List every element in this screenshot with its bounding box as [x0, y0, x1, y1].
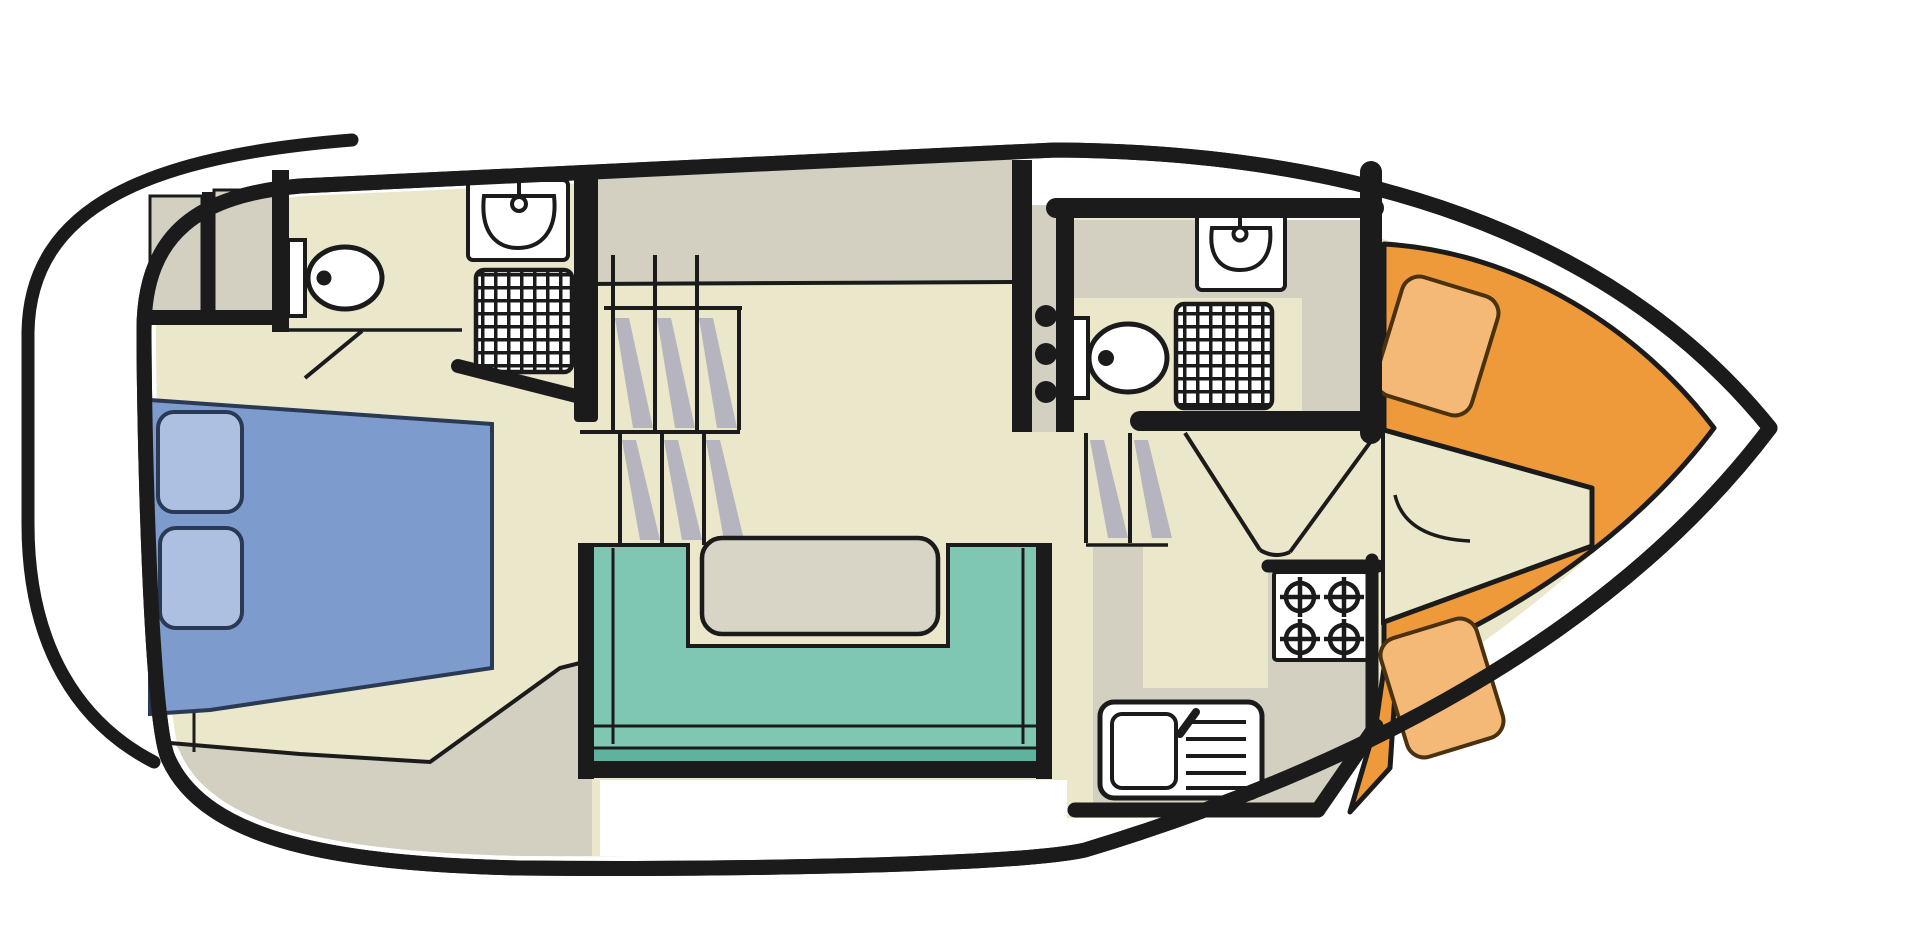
seat-end-wall: [578, 543, 594, 779]
pillow: [160, 528, 242, 628]
seat-base-wall: [578, 761, 1052, 778]
washbasin-icon: [468, 180, 568, 260]
shower-grid-icon: [1176, 304, 1272, 408]
doorway-dots: [1035, 305, 1057, 403]
toilet-icon: [288, 240, 382, 316]
stove-4-burner-icon: [1274, 572, 1368, 660]
pillow: [158, 412, 242, 512]
aft-cabin: [150, 400, 492, 714]
toilet-icon: [1072, 318, 1167, 398]
shower-grid-icon: [476, 270, 572, 372]
seat-end-wall: [1036, 543, 1052, 779]
washbasin-icon: [1197, 212, 1285, 290]
galley-sink-icon: [1100, 702, 1262, 798]
saloon-table: [702, 538, 938, 634]
floor-plan-page: [0, 0, 1920, 928]
boat-floor-plan-diagram: [0, 0, 1920, 928]
saloon: [578, 538, 1052, 779]
